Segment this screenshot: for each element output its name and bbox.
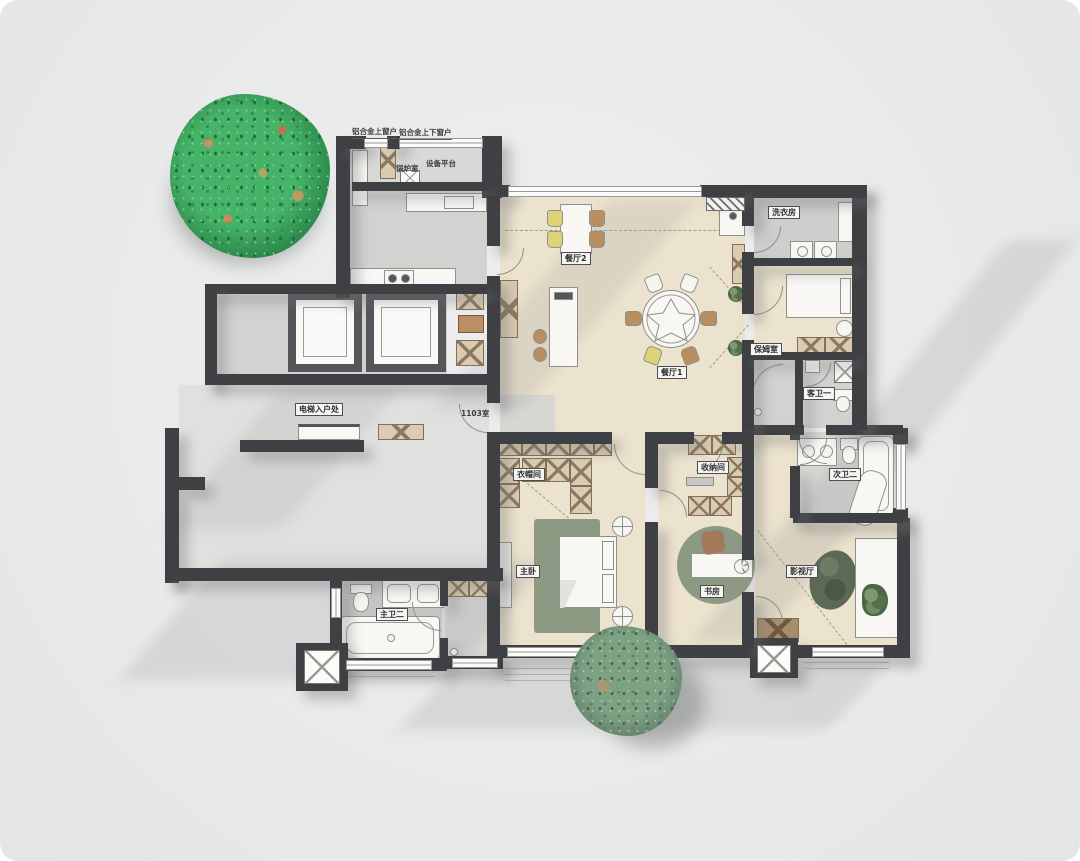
round-dining-table	[642, 290, 700, 348]
small-room-cabinet	[447, 579, 469, 597]
dryer-door	[821, 246, 832, 257]
nightstand	[612, 516, 633, 537]
room-label-dining1: 餐厅1	[657, 366, 687, 379]
laundry-sink-unit	[838, 202, 853, 242]
room-label-nanny: 保姆室	[750, 343, 782, 356]
nanny-pillow	[840, 278, 851, 314]
room-label-guest-bath: 客卫一	[803, 387, 835, 400]
dashed-line	[505, 230, 741, 231]
wall	[897, 518, 910, 658]
tub-drain	[387, 634, 395, 642]
tree-large	[158, 90, 348, 280]
shaft-box-bottom-left	[304, 650, 340, 684]
pillow	[602, 541, 614, 570]
room-label-closet: 衣帽间	[513, 468, 545, 481]
wall	[742, 252, 754, 314]
wall	[205, 284, 217, 384]
burner	[388, 274, 397, 283]
desk-fan	[734, 559, 749, 574]
wall	[487, 432, 500, 581]
utility-fixture	[352, 150, 368, 206]
burner	[401, 274, 410, 283]
wall	[205, 284, 487, 294]
room-label-second-bath: 次卫二	[829, 468, 861, 481]
wall	[487, 581, 500, 668]
floor-drain	[450, 648, 458, 656]
dining-chair	[547, 210, 563, 227]
wall	[790, 466, 800, 518]
wall	[500, 432, 612, 444]
unit-number-label: 1103室	[461, 408, 489, 420]
wall	[795, 360, 803, 428]
wall	[487, 276, 500, 306]
wall	[745, 185, 867, 198]
tree-small	[558, 618, 708, 758]
railing-line	[805, 662, 889, 663]
dining-table-2	[560, 204, 592, 254]
railing-line	[345, 676, 435, 677]
room-label-theater: 影视厅	[786, 565, 818, 578]
window-note-2: 铝合金上下窗户	[399, 127, 452, 140]
closet-cell	[498, 484, 520, 508]
window-master-bath-south	[346, 660, 432, 670]
dining-chair	[547, 231, 563, 248]
wall	[352, 182, 487, 191]
window-boiler-left	[364, 138, 388, 148]
entry-mat	[378, 424, 424, 440]
pantry-cabinet	[500, 280, 518, 338]
storage-console	[686, 477, 714, 486]
desk-chair	[699, 528, 726, 555]
toilet-bowl	[353, 592, 369, 612]
wall	[165, 428, 179, 583]
wall	[645, 432, 658, 488]
tree-crown	[570, 626, 682, 736]
room-label-master-bath: 主卫二	[376, 608, 408, 621]
washer-door	[797, 246, 808, 257]
closet-cell	[570, 458, 592, 486]
wall	[487, 305, 500, 403]
duvet-fold	[559, 580, 582, 608]
lamp	[729, 212, 737, 220]
floor-plan-canvas: 铝合金上窗户 铝合金上下窗户 锅炉室 设备平台 餐厅2 餐厅1 洗衣房 保姆室 …	[0, 0, 1080, 861]
wall	[205, 374, 487, 385]
wall	[700, 185, 745, 197]
table-star-pattern	[643, 291, 699, 347]
room-label-study: 书房	[700, 585, 724, 598]
bar-stool	[533, 329, 547, 344]
shaft-box-bottom-center	[757, 645, 791, 673]
wall	[240, 440, 364, 452]
dining-chair	[589, 231, 605, 248]
cabinet-hatch	[456, 340, 484, 366]
storage-shelf	[688, 496, 710, 516]
elevator-shaft-right	[366, 292, 446, 372]
floor-plan: 铝合金上窗户 铝合金上下窗户 锅炉室 设备平台 餐厅2 餐厅1 洗衣房 保姆室 …	[0, 0, 1080, 861]
window-small-room-south	[452, 658, 498, 668]
dining-chair	[700, 311, 717, 326]
floor-drain	[754, 408, 762, 416]
room-label-laundry: 洗衣房	[768, 206, 800, 219]
window-living-north	[508, 186, 702, 197]
room-label-dining2: 餐厅2	[561, 252, 591, 265]
daybed-plant	[862, 584, 888, 616]
wall	[793, 513, 903, 523]
room-label-storage: 收纳间	[697, 461, 729, 474]
wood-cabinet	[458, 315, 484, 333]
wall	[742, 592, 754, 648]
wall	[742, 432, 754, 560]
bar-stool	[533, 347, 547, 362]
window-theater-south	[812, 647, 884, 657]
flue-hatch	[706, 197, 745, 211]
room-label-boiler: 锅炉室	[396, 163, 419, 175]
toilet-bowl	[836, 396, 850, 412]
storage-shelf	[710, 496, 732, 516]
elevator-shaft-left	[288, 292, 362, 372]
room-label-elevator-entry: 电梯入户处	[295, 403, 343, 416]
dining-chair	[589, 210, 605, 227]
round-stool	[836, 320, 853, 337]
wall	[487, 196, 500, 246]
wall	[754, 258, 854, 266]
pillow	[602, 574, 614, 603]
kitchen-sink	[444, 196, 474, 209]
sink	[417, 584, 439, 603]
closet-cell	[570, 486, 592, 514]
window-second-bath-east	[896, 444, 906, 510]
dining-chair	[625, 311, 642, 326]
wall	[658, 432, 694, 444]
lobby-console	[298, 424, 360, 440]
tree-crown	[170, 94, 330, 258]
island-item	[554, 292, 573, 300]
sink	[387, 584, 411, 603]
window-note-1: 铝合金上窗户	[352, 126, 397, 139]
wall	[179, 477, 205, 490]
toilet-bowl	[842, 446, 856, 464]
wall	[852, 185, 867, 430]
room-label-equipment: 设备平台	[426, 158, 456, 170]
railing-line	[805, 668, 889, 669]
wall	[165, 568, 503, 581]
wall	[440, 578, 448, 606]
closet-cell	[546, 458, 570, 482]
window-master-bath-west	[331, 588, 341, 618]
room-label-master: 主卧	[516, 565, 540, 578]
